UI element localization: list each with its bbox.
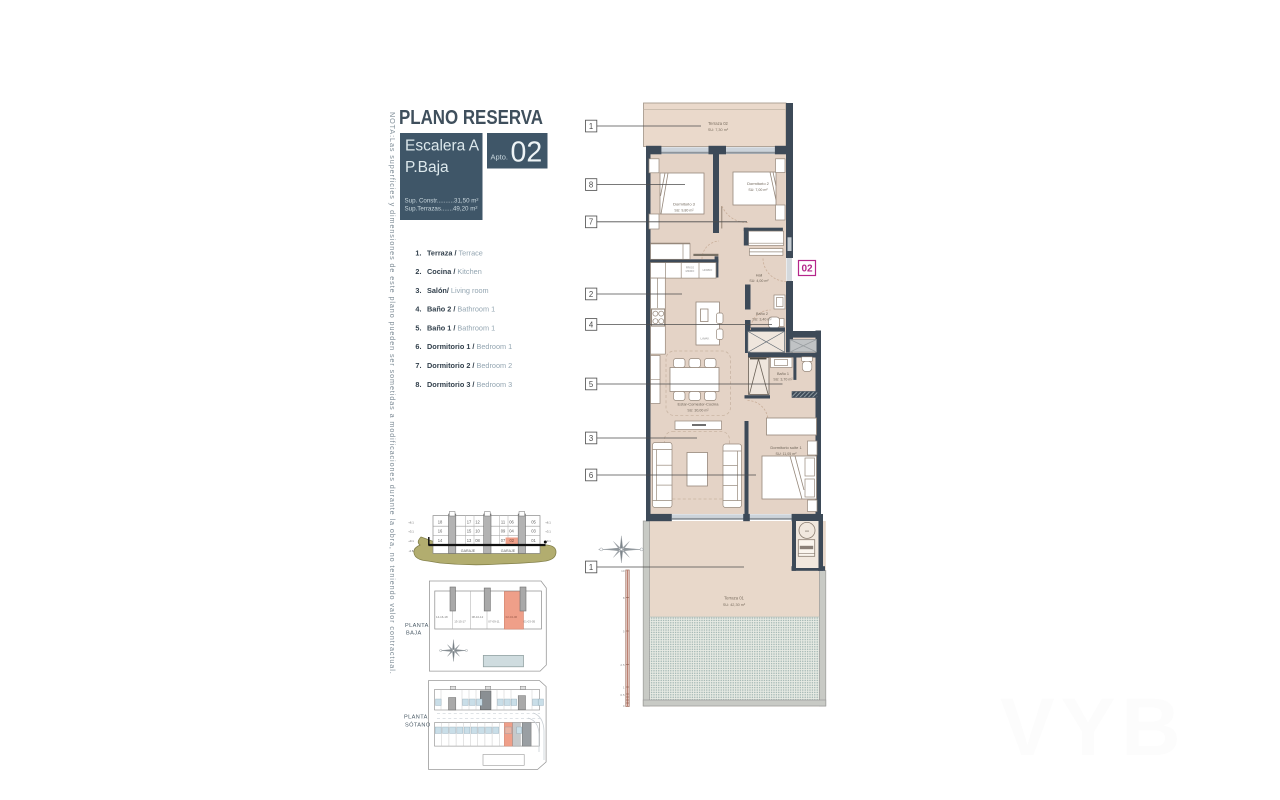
svg-text:Dormitorio 3 / Bedroom 3: Dormitorio 3 / Bedroom 3 [427,380,512,389]
svg-text:VYB: VYB [1000,682,1187,773]
svg-text:PLANO RESERVA: PLANO RESERVA [399,107,543,129]
svg-text:NOTA:Las superficies y dimensi: NOTA:Las superficies y dimensiones de es… [388,112,397,675]
svg-text:4: 4 [589,320,594,329]
svg-text:Dormitorio 1 / Bedroom 1: Dormitorio 1 / Bedroom 1 [427,342,512,351]
svg-text:BAJA: BAJA [406,631,422,637]
svg-text:Apto.: Apto. [491,153,509,162]
svg-text:HORNO: HORNO [703,268,713,272]
svg-text:Hall: Hall [756,274,763,278]
svg-text:SU: 9,80 m²: SU: 9,80 m² [674,209,694,213]
svg-text:SU: 42,30 m²: SU: 42,30 m² [723,603,746,607]
svg-text:01: 01 [531,538,536,543]
svg-text:02-04-06: 02-04-06 [506,615,518,619]
svg-text:SU: 11,05 m²: SU: 11,05 m² [776,452,798,456]
svg-text:Dormitorio 3: Dormitorio 3 [673,202,696,207]
svg-text:-2.8: -2.8 [409,549,414,553]
svg-text:08: 08 [475,538,480,543]
svg-text:FRIGO: FRIGO [686,266,694,270]
svg-text:SU: 4,00 m²: SU: 4,00 m² [749,279,769,283]
svg-text:Dormitorio 2: Dormitorio 2 [747,181,770,186]
svg-text:02: 02 [511,137,543,169]
svg-text:Baño 1 / Bathroom 1: Baño 1 / Bathroom 1 [427,323,495,332]
svg-text:SU: 7,30 m²: SU: 7,30 m² [708,128,729,132]
svg-text:15: 15 [467,529,472,534]
svg-text:Dormitorio 2 / Bedroom 2: Dormitorio 2 / Bedroom 2 [427,361,512,370]
svg-text:04: 04 [509,529,514,534]
svg-text:Estar-Comedor-Cocina: Estar-Comedor-Cocina [678,402,720,407]
svg-text:14: 14 [438,538,443,543]
svg-text:GARAJE: GARAJE [461,549,476,553]
svg-text:10: 10 [475,529,480,534]
svg-text:2.: 2. [415,267,421,276]
svg-text:7: 7 [589,218,593,227]
svg-text:+0.1: +0.1 [408,539,414,543]
svg-text:02: 02 [801,264,813,275]
svg-text:LAVAV.: LAVAV. [701,337,710,341]
svg-text:SU: 3,70 m²: SU: 3,70 m² [773,378,793,382]
svg-text:1: 1 [589,122,593,131]
svg-text:11: 11 [501,519,506,524]
svg-text:8.: 8. [415,380,421,389]
svg-text:+6.1: +6.1 [545,520,551,524]
svg-text:Escalera A: Escalera A [405,138,480,155]
svg-text:17: 17 [467,519,472,524]
svg-text:02: 02 [510,538,515,543]
svg-text:SU: 3,40 m²: SU: 3,40 m² [752,318,772,322]
svg-text:Terraza 02: Terraza 02 [708,121,728,126]
svg-text:10: 10 [621,569,625,573]
svg-text:05: 05 [531,519,536,524]
svg-text:0.5: 0.5 [620,693,625,697]
svg-text:Sup. Constr..........31,50 m²: Sup. Constr..........31,50 m² [405,198,479,205]
svg-text:08-10-12: 08-10-12 [472,615,484,619]
svg-text:Baño 2 / Bathroom 1: Baño 2 / Bathroom 1 [427,305,495,314]
svg-text:Dormitorio suite 1: Dormitorio suite 1 [770,445,802,450]
svg-text:+3.1: +3.1 [545,530,551,534]
svg-text:Baño 1: Baño 1 [777,372,789,376]
svg-text:4.: 4. [415,305,421,314]
svg-text:7.: 7. [415,361,421,370]
svg-text:Cocina / Kitchen: Cocina / Kitchen [427,267,482,276]
svg-text:SU: 7,00 m²: SU: 7,00 m² [748,188,768,192]
svg-text:SÓTANO: SÓTANO [405,722,431,729]
svg-text:5: 5 [589,380,594,389]
svg-text:1: 1 [589,563,593,572]
svg-text:+6.1: +6.1 [408,520,414,524]
svg-text:6.: 6. [415,342,421,351]
svg-text:MICRO: MICRO [686,269,695,273]
svg-text:12: 12 [475,519,480,524]
svg-text:16: 16 [438,529,443,534]
svg-text:8: 8 [589,180,593,189]
svg-text:2.5: 2.5 [620,663,625,667]
svg-text:18: 18 [438,519,443,524]
svg-text:2: 2 [589,290,593,299]
svg-text:SU: 30,00 m²: SU: 30,00 m² [687,409,709,413]
svg-text:1.: 1. [415,249,421,258]
svg-text:AA: AA [805,529,809,533]
svg-text:+3.1: +3.1 [408,530,414,534]
svg-text:3.: 3. [415,286,421,295]
svg-text:Baño 2: Baño 2 [756,312,768,316]
svg-text:13-15-17: 13-15-17 [454,620,466,624]
svg-text:GARAJE: GARAJE [501,549,516,553]
svg-text:PLANTA: PLANTA [405,623,429,629]
svg-text:09: 09 [501,529,506,534]
svg-text:6: 6 [589,471,593,480]
svg-text:Salón/ Living room: Salón/ Living room [427,286,489,295]
svg-text:07-09-11: 07-09-11 [488,620,500,624]
svg-text:03: 03 [531,529,536,534]
svg-text:14-16-18: 14-16-18 [436,615,448,619]
svg-text:07: 07 [501,538,506,543]
svg-text:06: 06 [509,519,514,524]
svg-text:5.: 5. [415,323,421,332]
svg-text:Terraza / Terrace: Terraza / Terrace [427,249,483,258]
svg-text:Terraza 01: Terraza 01 [724,596,744,601]
svg-text:P.Baja: P.Baja [405,159,449,176]
svg-text:Sup.Terrazas.......49,20 m²: Sup.Terrazas.......49,20 m² [405,206,478,213]
svg-text:01-03-05: 01-03-05 [524,620,536,624]
svg-text:3: 3 [589,434,593,443]
svg-text:PLANTA: PLANTA [404,715,428,721]
svg-text:13: 13 [467,538,472,543]
